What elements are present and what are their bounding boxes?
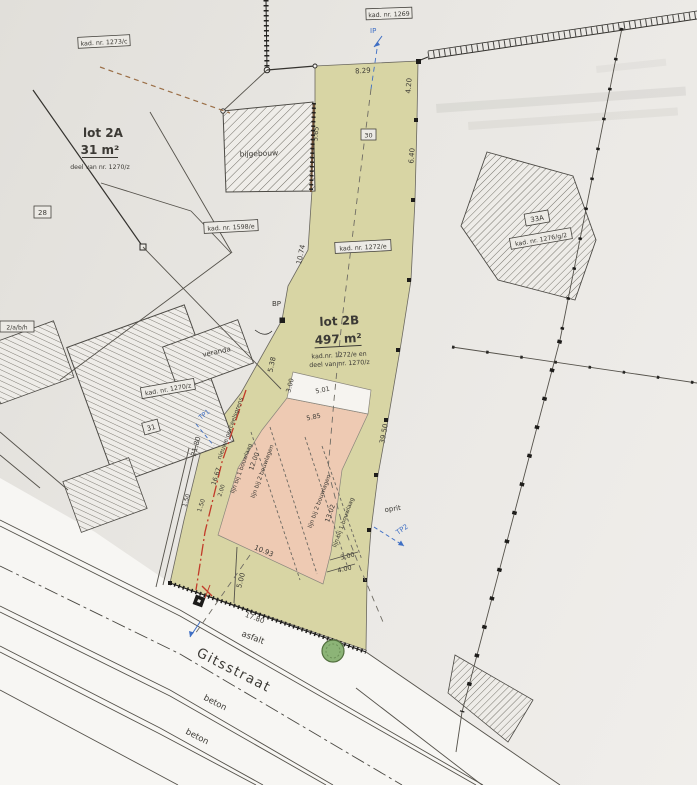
lot2a-title: lot 2A xyxy=(83,126,124,140)
building-fragment-left xyxy=(0,321,74,404)
label-kad-1272: kad. nr. 1272/e xyxy=(335,240,391,254)
label-edge-partial: 2/a/b/h xyxy=(0,321,34,332)
tree-symbol xyxy=(322,640,344,662)
building-bijgebouw xyxy=(223,102,315,192)
point-ip-label: IP xyxy=(370,27,376,35)
lot2b-area: 497 m² xyxy=(314,331,362,347)
scan-artifacts xyxy=(436,59,686,130)
oprit-label: oprit xyxy=(384,504,402,514)
svg-text:kad. nr. 1269: kad. nr. 1269 xyxy=(368,11,410,19)
building-33a xyxy=(461,152,596,300)
dim-4-20: 4.20 xyxy=(404,78,413,94)
label-kad-1598: kad. nr. 1598/e xyxy=(204,220,259,234)
label-house-28: 28 xyxy=(34,206,51,218)
label-house-30: 30 xyxy=(361,129,376,140)
svg-text:30: 30 xyxy=(364,132,372,140)
bijgebouw-label: bijgebouw xyxy=(239,148,278,158)
dim-6-40: 6.40 xyxy=(407,148,416,164)
point-tp2-label: TP2 xyxy=(394,523,410,538)
dim-5-65: 5.65 xyxy=(311,126,320,141)
svg-text:2/a/b/h: 2/a/b/h xyxy=(6,325,27,332)
point-bp-label: BP xyxy=(272,300,281,308)
dim-8-29: 8.29 xyxy=(355,66,371,75)
site-plan-canvas: kad. nr. 1273/c kad. nr. 1269 kad. nr. 1… xyxy=(0,0,697,785)
label-kad-1273: kad. nr. 1273/c xyxy=(78,35,131,49)
svg-text:28: 28 xyxy=(38,209,47,217)
scanned-site-plan: kad. nr. 1273/c kad. nr. 1269 kad. nr. 1… xyxy=(0,0,697,785)
lot2a-area: 31 m² xyxy=(81,143,120,157)
lot2a-note: deel van nr. 1270/z xyxy=(70,164,129,171)
lot2a-title-block: lot 2A 31 m² deel van nr. 1270/z xyxy=(70,126,129,171)
label-kad-1269: kad. nr. 1269 xyxy=(366,7,412,20)
lot2b-title: lot 2B xyxy=(319,313,359,329)
